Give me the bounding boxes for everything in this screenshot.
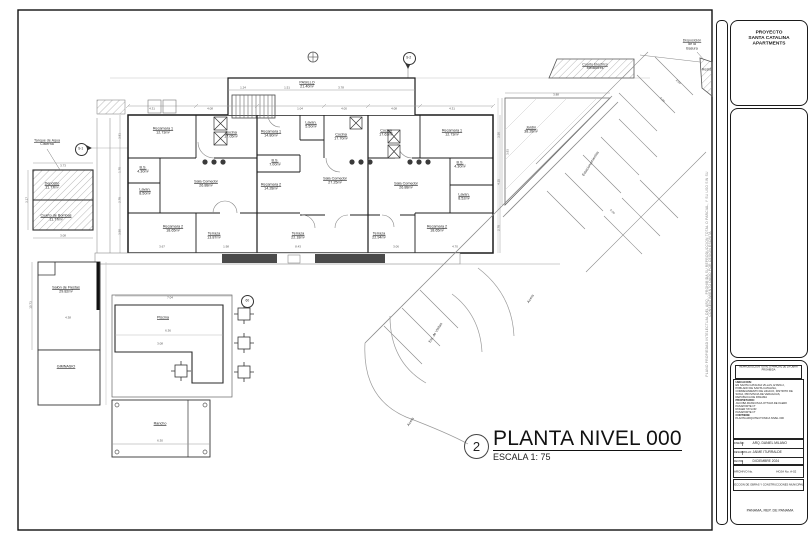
dimension-label: 1.51: [284, 87, 290, 90]
plan-title-text: PLANTA NIVEL 000: [493, 428, 682, 451]
section-marker-s1: S-1: [75, 143, 88, 156]
archivo-row: ARCHIVO No. HOJA No. A-02: [733, 465, 804, 478]
room-label: Cocina17.70m²: [334, 133, 348, 141]
room-label: Recamara 218.65m²: [163, 225, 183, 233]
site-label: Tanque de AguaCisterna: [34, 139, 60, 147]
dimension-label: 4.00: [341, 108, 347, 111]
fecha-label: FECHA:: [734, 460, 743, 464]
municipal-text: DIRECCION DE OBRAS Y CONSTRUCCIONES MUNI…: [733, 484, 804, 487]
plan-scale-text: ESCALA 1: 75: [493, 452, 682, 462]
pool-column-tag: 60: [241, 295, 254, 308]
room-label: Recamara 214.28m²: [261, 183, 281, 191]
dimension-label: 3.73: [60, 165, 66, 168]
room-label: Cocina17.05m²: [224, 131, 238, 139]
footer-text: PANAMA, REP. DE PANAMA: [747, 509, 794, 513]
dimension-label: 4.31: [449, 108, 455, 111]
room-label: Jardín38.28m²: [524, 126, 538, 134]
desarrollo-value: JAIME ITURRALDE: [752, 451, 787, 455]
project-line1: PROYECTO: [756, 30, 783, 35]
room-label: B.S.4.30m²: [137, 166, 149, 174]
dimension-label: 1.24: [240, 87, 246, 90]
signatures-box: DISEÑO: ARQ. DANIEL MILANO DESARROLLO: J…: [733, 439, 804, 465]
dimension-label: 4.70: [452, 246, 458, 249]
site-label: Est. de Visitas: [428, 322, 443, 343]
titleblock-footer: PANAMA, REP. DE PANAMA: [731, 499, 807, 517]
dimension-label: 2.78: [119, 197, 122, 203]
dimension-label: 4.08: [207, 108, 213, 111]
dimension-label: 2.78: [498, 225, 501, 231]
project-title-panel: PROYECTO SANTA CATALINA APARTMENTS: [730, 20, 808, 106]
dimension-label: 1.70: [119, 167, 122, 173]
project-line3: APARTMENTS: [753, 41, 786, 46]
dimension-label: 6.30: [157, 440, 163, 443]
site-label: Estacionamientos: [582, 151, 600, 177]
room-label: Recamara 114.80m²: [261, 130, 281, 138]
room-label: Sala Comedor26.88m²: [394, 182, 418, 190]
site-label: Disposiciónde laBasura: [683, 39, 701, 51]
section-marker-s1-label: S-1: [78, 147, 83, 150]
dimension-label: 3.78: [338, 87, 344, 90]
dimension-label: 2.50: [675, 79, 681, 85]
pool-column-number: 60: [245, 299, 249, 302]
dimension-label: 4.31: [149, 108, 155, 111]
site-label: Resid.: [702, 68, 712, 72]
room-label: B.S.4.30m²: [454, 161, 466, 169]
room-label: Recamara 218.65m²: [427, 225, 447, 233]
room-label: Cuarto de Bombas11.77m²: [40, 214, 71, 222]
sheet-title-block: 2 PLANTA NIVEL 000 ESCALA 1: 75: [464, 428, 682, 462]
dimension-label: 3.08: [157, 343, 163, 346]
room-label: Terraza13.87m²: [207, 232, 221, 240]
dimension-label: 5.00: [659, 97, 665, 103]
archivo-hoja: HOJA No. A-02: [777, 470, 797, 473]
room-label: B.S.7.00m²: [269, 159, 281, 167]
section-marker-s2-label: S-2: [406, 56, 411, 59]
empty-notes-panel: [730, 108, 808, 358]
plan-labels-layer: Recamara 112.73m²Cocina17.05m²B.S.4.30m²…: [0, 0, 810, 540]
notice-line2: PROHIBIDA: [762, 368, 776, 371]
dimension-label: 5.00: [609, 209, 615, 215]
title-block-panel: REPRODUCCION TOTAL O PARCIAL DE LA OBRA …: [730, 360, 808, 525]
desarrollo-label: DESARROLLO:: [734, 451, 743, 455]
dimension-label: 3.88: [553, 94, 559, 97]
dimension-label: 3.08: [60, 235, 66, 238]
section-marker-s2: S-2: [403, 52, 416, 65]
site-label: Acera: [407, 417, 415, 427]
dimension-label: 4.38: [65, 317, 71, 320]
dimension-label: 1.04: [297, 108, 303, 111]
archivo-label: ARCHIVO No.: [734, 470, 753, 473]
binding-strip: [716, 20, 728, 525]
dimension-label: 4.08: [391, 108, 397, 111]
fecha-value: DICIEMBRE 2024: [752, 460, 787, 464]
dimension-label: 1.98: [223, 246, 229, 249]
diseno-label: DISEÑO:: [734, 442, 743, 446]
room-label: Cocina17.63m²: [379, 129, 393, 137]
room-label: Rancho: [154, 422, 167, 426]
room-label: Lavan.5.50m²: [305, 121, 317, 129]
room-label: Lavan.8.50m²: [139, 188, 151, 196]
dimension-label: 3.81: [119, 133, 122, 139]
dimension-label: 3.17: [26, 197, 29, 203]
room-label: Salón de Fiestas29.82m²: [52, 286, 80, 294]
room-label: Terraza22.18m²: [291, 232, 305, 240]
room-label: GIMNASIO: [57, 365, 76, 369]
room-label: Piscina: [157, 316, 169, 320]
project-line2: SANTA CATALINA: [748, 36, 789, 41]
contiene-value: PLANTA ARQUITECTONICA NIVEL 000: [736, 417, 784, 420]
plan-number-bubble: 2: [464, 434, 489, 459]
room-label: Terraza22.94m²: [372, 232, 386, 240]
drawing-sheet: Recamara 112.73m²Cocina17.05m²B.S.4.30m²…: [0, 0, 810, 540]
dimension-label: 6.36: [165, 330, 171, 333]
dimension-label: 3.67: [159, 246, 165, 249]
room-label: Sala Comedor26.88m²: [194, 180, 218, 188]
site-label: Acera: [527, 294, 535, 304]
dimension-label: 3.06: [393, 246, 399, 249]
municipal-bar: DIRECCION DE OBRAS Y CONSTRUCCIONES MUNI…: [733, 479, 804, 491]
project-info-box: UBICACION: EN SANTA CATALINA VILLAS, ETA…: [733, 379, 804, 439]
room-label: Sala Comedor27.25m²: [323, 177, 347, 185]
reproduction-notice: REPRODUCCION TOTAL O PARCIAL DE LA OBRA …: [735, 365, 802, 379]
copyright-side-note: PLANO PROPIEDAD INTELECTUAL DEL ARQ. - P…: [706, 156, 713, 393]
dimension-label: 8.43: [295, 246, 301, 249]
dimension-label: 4.35: [498, 179, 501, 185]
room-label: Recamara 112.73m²: [153, 127, 173, 135]
dimension-label: 10.73: [30, 301, 33, 309]
dimension-label: 3.50: [498, 132, 501, 138]
dimension-label: 3.50: [119, 229, 122, 235]
room-label: Recamara 112.73m²: [442, 129, 462, 137]
dimension-label: 3.93: [507, 149, 510, 155]
room-label: PASILLO21.40m²: [299, 81, 314, 89]
site-label: Cuarto ElectricoMedidores: [582, 63, 608, 71]
diseno-value: ARQ. DANIEL MILANO: [752, 442, 787, 446]
room-label: Lavan.8.52m²: [458, 193, 470, 201]
room-label: Depósito11.77m²: [45, 182, 60, 190]
dimension-label: 7.04: [167, 297, 173, 300]
